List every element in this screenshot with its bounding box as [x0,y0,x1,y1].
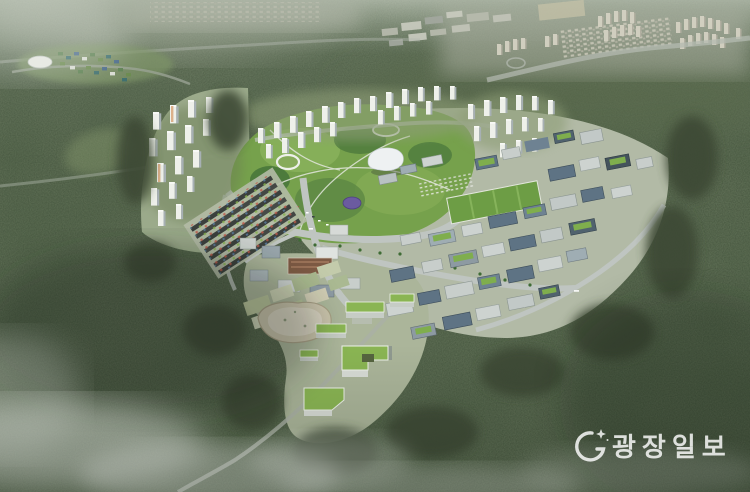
bottom-vignette [0,0,750,492]
aerial-rendering-image: 광장일보 [0,0,750,492]
watermark-text: 광장일보 [612,433,732,463]
